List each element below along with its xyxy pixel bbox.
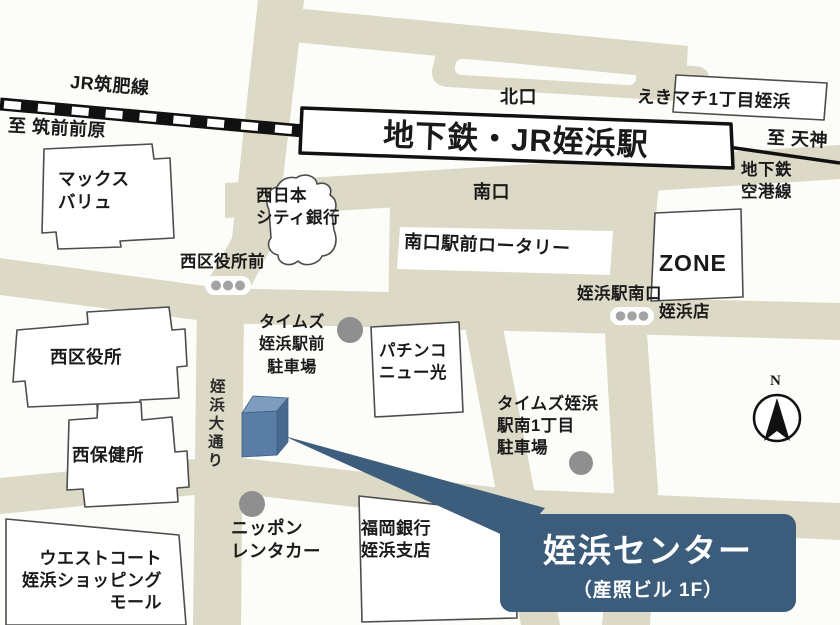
west-court-mall-label: ウエストコート 姪浜ショッピング モール	[2, 548, 162, 614]
road-north-top	[293, 8, 688, 80]
north-exit-label: 北口	[500, 86, 537, 110]
destination-marker-cube	[242, 396, 288, 457]
times-minami-parking-label: タイムズ姪浜 駅南1丁目 駐車場	[497, 394, 599, 459]
subway-airport-line-label: 地下鉄 空港線	[741, 160, 792, 204]
destination-label: 姪浜センター （産照ビル 1F）	[500, 514, 796, 612]
fukuoka-bank-label: 福岡銀行 姪浜支店	[361, 518, 431, 563]
destination-floor: （産照ビル 1F）	[573, 575, 723, 602]
nishi-ward-office-front-label: 西区役所前	[180, 252, 265, 274]
meinohama-odori-label: 姪浜大通り	[202, 378, 226, 471]
nishi-health-center-label: 西保健所	[72, 444, 144, 467]
south-exit-label: 南口	[473, 181, 510, 205]
parking-dot-icon	[337, 317, 363, 343]
traffic-signal-icon	[610, 307, 654, 325]
destination-name: 姪浜センター	[543, 524, 753, 572]
times-ekimae-parking-label: タイムズ 姪浜駅前 駐車場	[246, 312, 338, 379]
station-south-exit-label: 姪浜駅南口	[577, 284, 662, 306]
compass-icon	[754, 395, 800, 441]
traffic-signal-icon	[205, 276, 251, 295]
pachinko-label: パチンコ ニュー光	[379, 341, 447, 385]
zone-branch: 姪浜店	[659, 302, 727, 324]
to-tenjin-label: 至 天神	[766, 126, 828, 153]
compass-n-label: N	[770, 372, 781, 392]
parking-dot-icon	[239, 491, 265, 517]
max-valu-label: マックス バリュ	[58, 168, 158, 214]
meinohama-center-access-map: JR筑肥線 至 筑前前原 マックス バリュ 北口 地下鉄・JR姪浜駅 えきマチ1…	[0, 0, 840, 625]
to-chikuzen-maebaru-label: 至 筑前前原	[7, 114, 106, 143]
zone-name: ZONE	[659, 248, 727, 278]
nippon-rentacar-label: ニッポン レンタカー	[231, 517, 321, 563]
nishi-ward-office-label: 西区役所	[50, 346, 122, 369]
zone-label: ZONE 姪浜店	[659, 227, 727, 344]
nishi-nippon-city-bank-label: 西日本 シティ銀行	[256, 186, 340, 230]
